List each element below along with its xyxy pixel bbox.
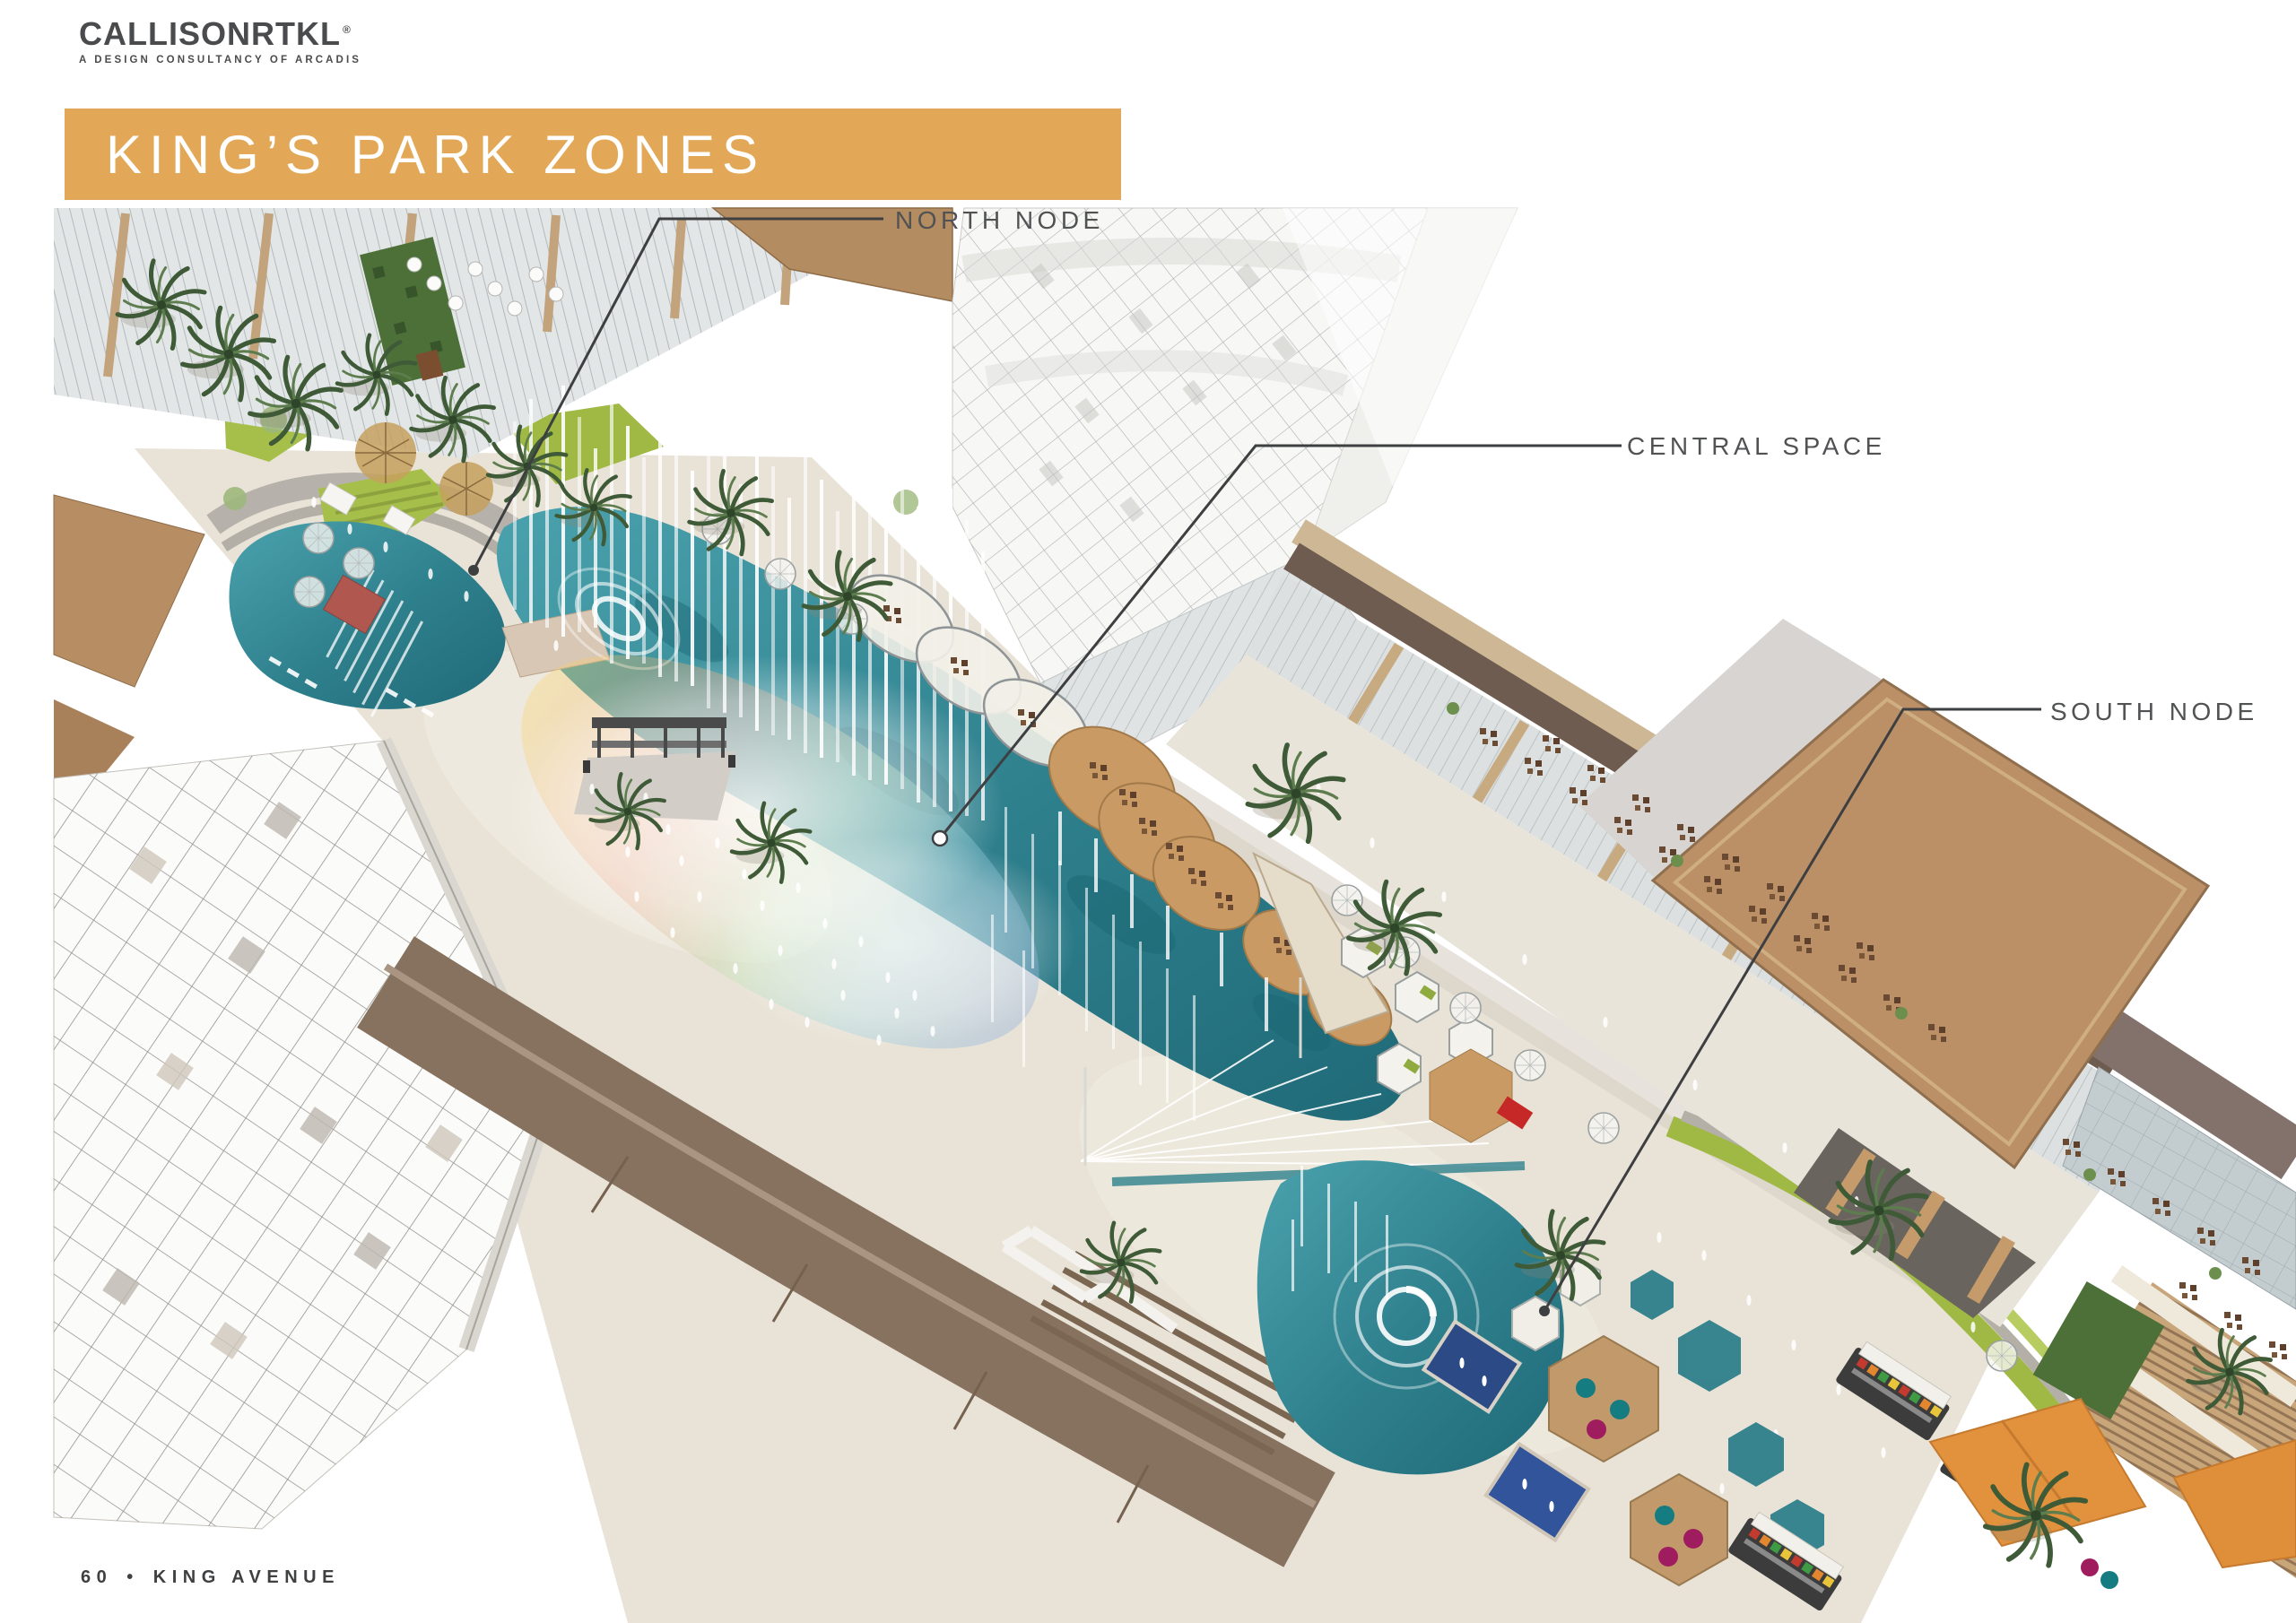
registered-mark: ®: [343, 23, 352, 36]
presentation-page: CALLISONRTKL® A DESIGN CONSULTANCY OF AR…: [0, 0, 2296, 1623]
brand-tagline: A DESIGN CONSULTANCY OF ARCADIS: [79, 55, 361, 65]
page-number: 60: [81, 1567, 112, 1587]
annotation-north-node: NORTH NODE: [895, 206, 1104, 235]
annotation-south-node: SOUTH NODE: [2050, 698, 2258, 726]
brand-name: CALLISONRTKL®: [79, 18, 361, 50]
page-footer: 60•KING AVENUE: [81, 1567, 340, 1588]
title-banner: KING’S PARK ZONES: [65, 108, 1121, 200]
footer-bullet: •: [126, 1567, 139, 1587]
page-title: KING’S PARK ZONES: [106, 124, 765, 186]
annotation-central-space: CENTRAL SPACE: [1627, 432, 1886, 461]
brand-name-text: CALLISONRTKL: [79, 15, 341, 52]
document-title: KING AVENUE: [153, 1567, 340, 1587]
brand-logo: CALLISONRTKL® A DESIGN CONSULTANCY OF AR…: [79, 18, 361, 65]
rendering-illustration: [0, 0, 2296, 1623]
